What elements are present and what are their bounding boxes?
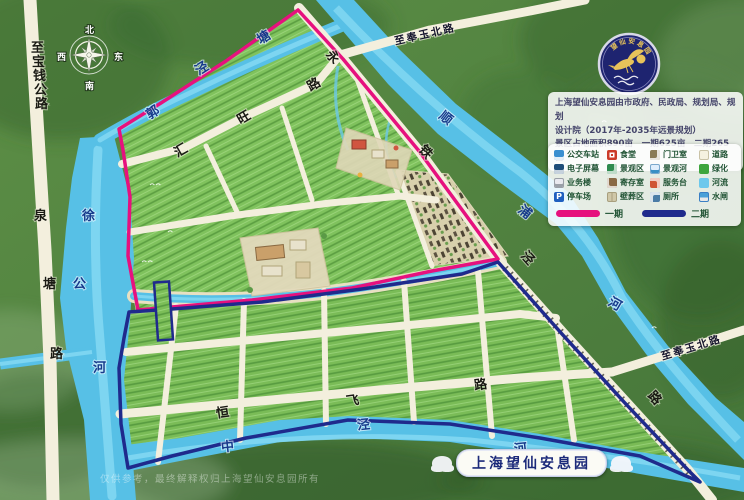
road-swatch (699, 150, 709, 160)
scenic-river-icon (650, 164, 660, 174)
river-label-char: 河 (93, 360, 106, 376)
legend-label: 壁葬区 (620, 191, 644, 202)
park-name-text: 上海望仙安息园 (456, 449, 607, 477)
legend-item: 河流 (699, 177, 737, 188)
legend-item: 壁葬区 (607, 191, 649, 202)
park-emblem: 望仙安息园 (595, 31, 663, 97)
road-label-char: 钱 (33, 68, 46, 84)
road-label-char: 恒 (215, 404, 230, 422)
legend-label: 食堂 (620, 149, 636, 160)
legend-label: 厕所 (663, 191, 679, 202)
legend-item: 水闸 (699, 191, 737, 202)
parking-icon: P (554, 192, 564, 202)
compass-rose (70, 36, 108, 74)
phase2-marked-plot (154, 282, 173, 341)
legend-label: 景观区 (620, 163, 644, 174)
service-buildings-cluster (240, 228, 330, 296)
legend-label: 业务楼 (567, 177, 591, 188)
screen-icon (554, 164, 564, 174)
legend-item: 业务楼 (554, 177, 606, 188)
legend-label: 服务台 (663, 177, 687, 188)
scenic-area-icon (607, 164, 617, 174)
river-swatch (699, 178, 709, 188)
legend-item: 公交车站 (554, 149, 606, 160)
legend-item: 厕所 (650, 191, 698, 202)
guard-room-icon (650, 150, 660, 160)
canteen-icon (607, 150, 617, 160)
sluice-icon (699, 192, 709, 202)
legend-label: 景观河 (663, 163, 687, 174)
legend-label: 河流 (712, 177, 728, 188)
park-name-banner: 上海望仙安息园 (432, 449, 631, 477)
legend-label: 绿化 (712, 163, 728, 174)
legend-label: 寄存室 (620, 177, 644, 188)
legend-item: P停车场 (554, 191, 606, 202)
phase1-line-swatch (556, 210, 600, 217)
legend-item: 景观区 (607, 163, 649, 174)
road-label-char: 飞 (345, 393, 360, 410)
legend-label: 停车场 (567, 191, 591, 202)
legend-label: 道路 (712, 149, 728, 160)
road-label-char: 宝 (32, 54, 45, 70)
legend-item: 绿化 (699, 163, 737, 174)
road-label-char: 路 (50, 346, 64, 362)
road-label-char: 至 (31, 41, 44, 56)
road-label-char: 路 (35, 96, 49, 112)
compass-north-label: 北 (85, 24, 94, 36)
phase1-label: 一期 (605, 207, 623, 220)
greenery-swatch (699, 164, 709, 174)
office-building-icon (554, 178, 564, 188)
moon-icon (637, 55, 646, 64)
river-label-char: 徐 (81, 208, 95, 224)
compass-east-label: 东 (114, 51, 123, 63)
service-desk-icon (650, 178, 660, 188)
river-label-char: 公 (73, 277, 86, 292)
legend-item: 电子屏幕 (554, 163, 606, 174)
disclaimer-watermark: 仅供参考，最终解释权归上海望仙安息园所有 (100, 471, 320, 485)
toilet-icon (650, 192, 660, 202)
phase2-label: 二期 (691, 207, 709, 220)
river-label-char: 泾 (356, 417, 371, 433)
phase-legend-row: 一期 二期 (554, 207, 735, 220)
compass-south-label: 南 (85, 80, 94, 92)
site-map-page: 北 东 南 西 至 宝 钱 公 路 泉 塘 路 徐 公 河 郭 泾 塘 汇 旺 … (0, 0, 744, 500)
legend-grid: 公交车站 食堂 门卫室 道路 电子屏幕 景观区 景观河 绿化 业务楼 寄存室 服… (554, 149, 735, 202)
road-label-char: 塘 (43, 276, 56, 292)
compass-west-label: 西 (57, 52, 66, 63)
info-line: 设计院（2017年-2035年远景规划） (555, 125, 736, 139)
info-line: 上海望仙安息园由市政府、民政局、规划局、规划 (555, 97, 736, 125)
river-label-char: 中 (220, 438, 235, 455)
legend-item: 寄存室 (607, 177, 649, 188)
storage-room-icon (607, 178, 617, 188)
legend-label: 电子屏幕 (567, 163, 599, 174)
legend-label: 公交车站 (567, 149, 599, 160)
legend-item: 食堂 (607, 149, 649, 160)
legend-label: 门卫室 (663, 149, 687, 160)
cloud-ornament-icon (611, 456, 631, 470)
legend-item: 景观河 (650, 163, 698, 174)
phase2-line-swatch (642, 210, 686, 217)
legend-item: 服务台 (650, 177, 698, 188)
legend-item: 门卫室 (650, 149, 698, 160)
bus-station-icon (554, 150, 564, 160)
road-label-char: 泉 (34, 208, 48, 224)
legend-label: 水闸 (712, 191, 728, 202)
wall-burial-icon (607, 192, 617, 202)
legend-item: 道路 (699, 149, 737, 160)
cloud-ornament-icon (432, 456, 452, 470)
legend-panel: 公交车站 食堂 门卫室 道路 电子屏幕 景观区 景观河 绿化 业务楼 寄存室 服… (548, 144, 741, 226)
road-label-char: 公 (34, 83, 47, 98)
